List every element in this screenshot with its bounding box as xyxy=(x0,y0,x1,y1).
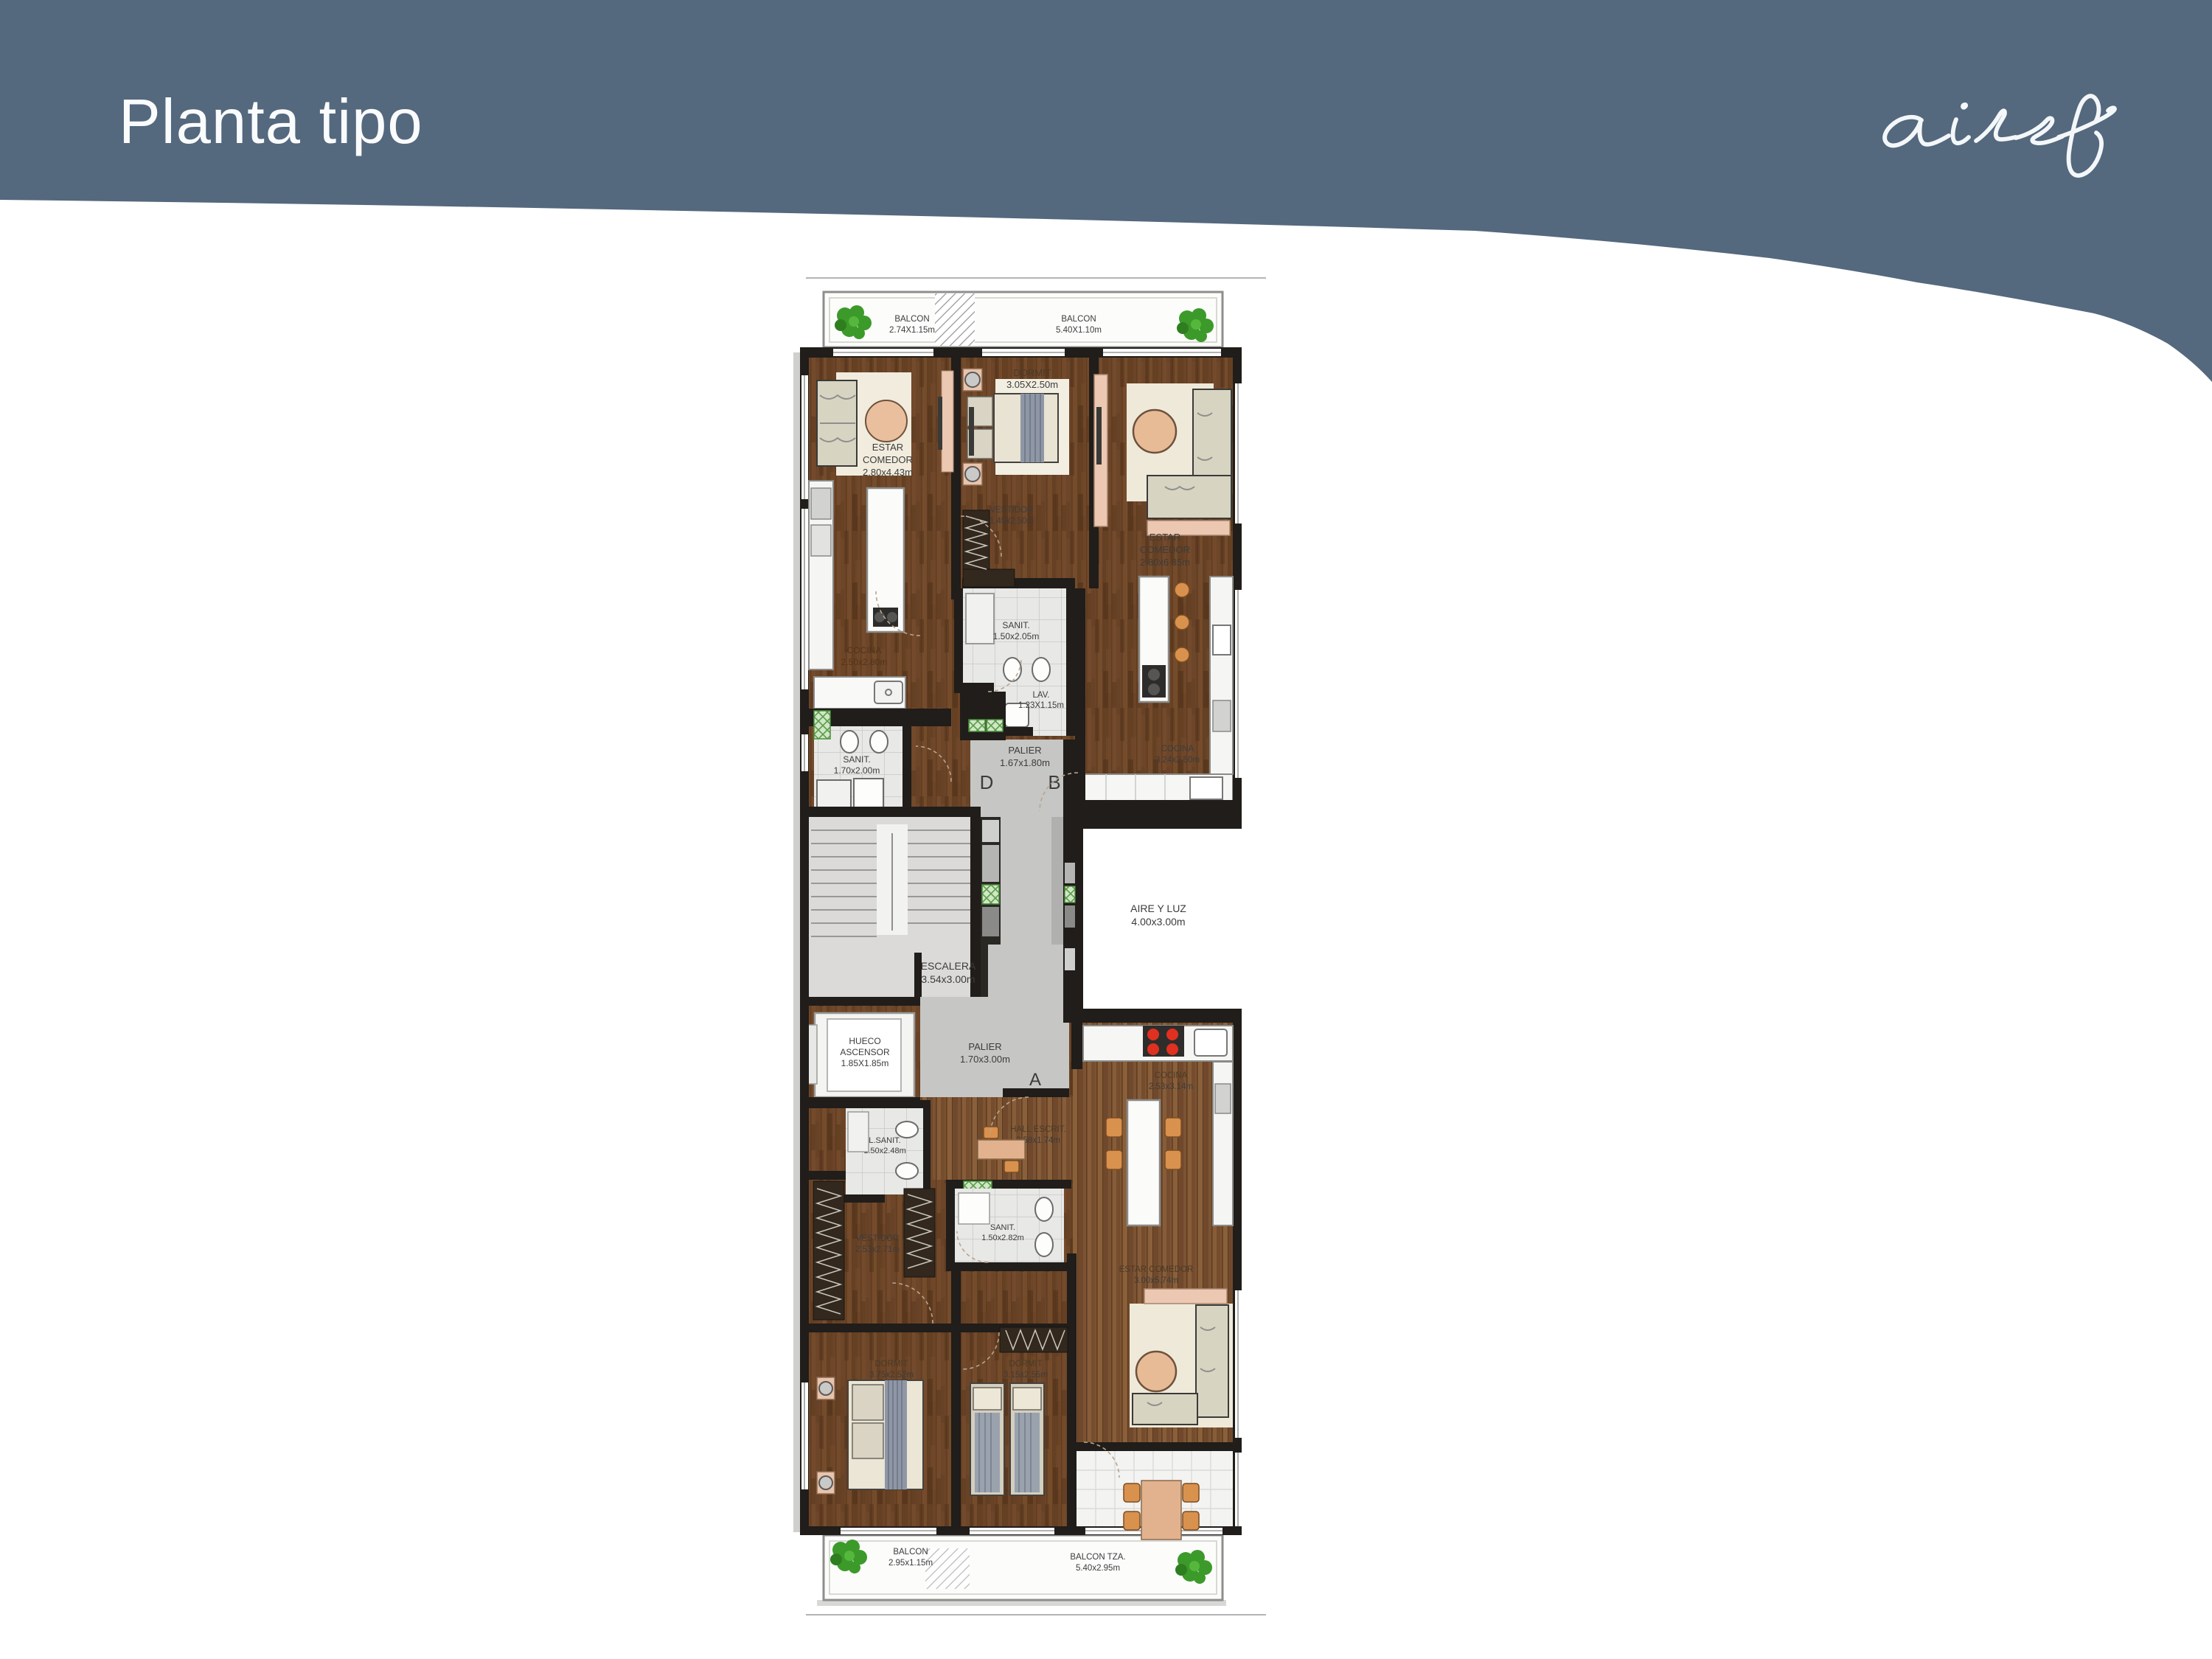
svg-text:PALIER: PALIER xyxy=(1008,745,1041,756)
svg-text:1.50x2.05m: 1.50x2.05m xyxy=(993,631,1040,641)
svg-text:SANIT.: SANIT. xyxy=(843,754,870,765)
svg-text:DORMIT: DORMIT xyxy=(1013,367,1051,378)
svg-text:BALCON: BALCON xyxy=(893,1548,928,1557)
svg-text:3.54x3.00m: 3.54x3.00m xyxy=(921,973,975,985)
svg-text:LAV.: LAV. xyxy=(1032,691,1049,700)
svg-text:3.24x2.50m: 3.24x2.50m xyxy=(1155,756,1200,765)
svg-text:SANIT.: SANIT. xyxy=(990,1223,1015,1232)
svg-text:AIRE Y LUZ: AIRE Y LUZ xyxy=(1130,902,1186,914)
svg-text:2.53x3.14m: 2.53x3.14m xyxy=(1149,1082,1193,1091)
svg-text:COCINA: COCINA xyxy=(1161,745,1194,754)
svg-text:ASCENSOR: ASCENSOR xyxy=(840,1047,890,1057)
svg-text:1.70x3.00m: 1.70x3.00m xyxy=(960,1054,1010,1065)
svg-text:1.23X1.15m: 1.23X1.15m xyxy=(1018,701,1064,710)
svg-text:5.40x2.95m: 5.40x2.95m xyxy=(1076,1564,1120,1573)
svg-text:B: B xyxy=(1048,771,1060,793)
svg-text:3.15x2.55m: 3.15x2.55m xyxy=(1004,1371,1048,1380)
svg-text:3.75x2.52m: 3.75x2.52m xyxy=(869,1371,914,1380)
svg-text:1.50x2.48m: 1.50x2.48m xyxy=(863,1147,905,1155)
svg-text:1.50x2.82m: 1.50x2.82m xyxy=(981,1234,1023,1242)
svg-text:COCINA: COCINA xyxy=(847,645,882,655)
svg-text:SANIT.: SANIT. xyxy=(1002,620,1029,630)
svg-text:ESCALERA: ESCALERA xyxy=(921,960,976,972)
svg-text:ESTAR COMEDOR: ESTAR COMEDOR xyxy=(1119,1265,1194,1274)
svg-text:1.45x2.50m: 1.45x2.50m xyxy=(990,517,1034,526)
svg-text:2.50x2.80m: 2.50x2.80m xyxy=(841,657,888,667)
svg-text:VESTIDOR: VESTIDOR xyxy=(990,506,1034,515)
svg-text:2.95x1.15m: 2.95x1.15m xyxy=(888,1559,933,1568)
svg-text:COMEDOR: COMEDOR xyxy=(863,454,913,465)
svg-text:HALL ESCRIT.: HALL ESCRIT. xyxy=(1010,1125,1066,1134)
svg-text:BALCON: BALCON xyxy=(1061,315,1096,324)
svg-text:ESTAR: ESTAR xyxy=(872,442,903,453)
svg-text:A: A xyxy=(1029,1070,1041,1090)
svg-text:2.53x2.71m: 2.53x2.71m xyxy=(855,1245,900,1254)
svg-text:VESTIDOR: VESTIDOR xyxy=(856,1234,900,1243)
svg-text:3.00x5.74m: 3.00x5.74m xyxy=(1134,1276,1178,1285)
svg-text:BALCON TZA.: BALCON TZA. xyxy=(1070,1553,1125,1562)
svg-text:DORMIT: DORMIT xyxy=(1009,1360,1042,1368)
svg-text:4.00x3.00m: 4.00x3.00m xyxy=(1131,916,1185,928)
svg-text:L.SANIT.: L.SANIT. xyxy=(869,1136,900,1145)
svg-text:Planta tipo: Planta tipo xyxy=(119,87,423,157)
svg-text:BALCON: BALCON xyxy=(894,315,929,324)
svg-text:HUECO: HUECO xyxy=(849,1036,880,1046)
svg-text:COMEDOR: COMEDOR xyxy=(1140,544,1190,555)
svg-text:2.80x4.43m: 2.80x4.43m xyxy=(863,467,913,478)
svg-text:DORMIT: DORMIT xyxy=(874,1360,908,1368)
svg-text:2.80x6.35m: 2.80x6.35m xyxy=(1140,557,1190,568)
svg-text:1.67x1.80m: 1.67x1.80m xyxy=(1000,757,1050,768)
svg-text:2.74X1.15m: 2.74X1.15m xyxy=(889,326,935,335)
svg-text:ESTAR: ESTAR xyxy=(1150,532,1180,543)
svg-text:5.40X1.10m: 5.40X1.10m xyxy=(1056,326,1102,335)
svg-text:3.05X2.50m: 3.05X2.50m xyxy=(1006,379,1058,390)
svg-text:1.85X1.85m: 1.85X1.85m xyxy=(841,1058,889,1068)
svg-text:D: D xyxy=(980,771,994,793)
svg-text:PALIER: PALIER xyxy=(968,1041,1001,1052)
svg-text:COCINA: COCINA xyxy=(1155,1071,1188,1080)
svg-text:1.70x2.00m: 1.70x2.00m xyxy=(834,765,880,776)
